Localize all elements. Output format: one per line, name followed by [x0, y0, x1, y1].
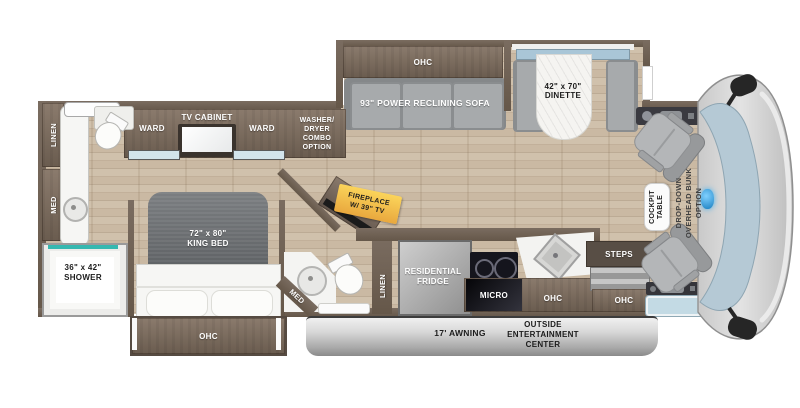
washer-dryer-line: WASHER/: [300, 116, 335, 125]
bedding-seam: [136, 286, 279, 288]
fridge-label: RESIDENTIAL: [405, 267, 462, 277]
front-cab: [690, 50, 800, 370]
tv-screen: [182, 127, 232, 152]
rv-floorplan: OHC 93" POWER RECLINING SOFA 42" x 70" D…: [0, 0, 800, 408]
overhead-bunk-option: DROP-DOWN OVERHEAD BUNK OPTION: [672, 163, 706, 243]
bunk-line: OPTION: [694, 188, 704, 219]
bed-slide-edge-right: [276, 318, 281, 350]
shower-size-label: 36" x 42": [65, 263, 102, 273]
bedroom-ohc: OHC: [130, 316, 287, 356]
fridge-label-block: RESIDENTIAL FRIDGE: [398, 266, 468, 288]
washer-dryer-line: DRYER: [304, 125, 330, 134]
steps-label: STEPS: [605, 250, 633, 259]
sofa: 93" POWER RECLINING SOFA: [344, 96, 506, 110]
mid-bath-sink-drain: [308, 276, 313, 281]
tv-cabinet: TV CABINET: [172, 111, 242, 123]
rear-sink-drain: [71, 205, 76, 210]
dinette-label: DINETTE: [545, 91, 581, 100]
dinette-size-label: 42" x 70": [545, 82, 582, 91]
pillow-right: [211, 290, 273, 317]
cockpit-table-label: COCKPIT: [649, 190, 657, 224]
shower-label-block: 36" x 42" SHOWER: [47, 261, 119, 285]
king-bed-label-block: 72" x 80" KING BED: [158, 227, 258, 251]
outside-entertainment: OUTSIDE ENTERTAINMENT CENTER: [478, 318, 608, 351]
cockpit-table: COCKPIT TABLE: [644, 183, 670, 231]
bed-slide-wall-left: [128, 200, 134, 317]
tv-cabinet-label: TV CABINET: [182, 113, 233, 122]
dinette-bench-right: [606, 60, 638, 132]
bed-slide-light-left: [128, 150, 180, 160]
bedroom-ohc-label: OHC: [199, 332, 218, 341]
dinette-slide-wall-right: [643, 40, 650, 68]
entry-steps: [590, 267, 650, 291]
king-bed-label: KING BED: [187, 239, 229, 249]
bed-slide-light-right: [233, 150, 285, 160]
sofa-ohc-label: OHC: [414, 58, 433, 67]
entry-ohc-label: OHC: [615, 296, 634, 305]
dinette: 42" x 70" DINETTE: [530, 78, 596, 104]
dash-knob: [650, 286, 656, 292]
fridge-label2: FRIDGE: [417, 277, 449, 287]
ward-right: WARD: [236, 121, 288, 135]
med-rear-label: MED: [46, 175, 60, 235]
kitchen-ohc-label: OHC: [544, 294, 563, 303]
dinette-side-window: [642, 66, 653, 100]
dinette-slide-wall-left: [504, 40, 511, 111]
bunk-line: DROP-DOWN: [674, 178, 684, 229]
shower-label: SHOWER: [64, 273, 102, 283]
ward-left-label: WARD: [139, 124, 165, 133]
linen-rear-label: LINEN: [46, 105, 60, 165]
cockpit-table-label2: TABLE: [657, 195, 665, 219]
rear-vanity-sink: [63, 197, 88, 222]
sofa-slide-wall-left: [336, 40, 343, 108]
bed-slide-edge-left: [132, 318, 137, 350]
burner: [494, 257, 517, 280]
washer-dryer-line: OPTION: [303, 143, 332, 152]
king-bed-size-label: 72" x 80": [190, 229, 227, 239]
burner: [475, 259, 494, 278]
micro-label: MICRO: [480, 291, 508, 300]
mid-bath-linen-label: LINEN: [376, 258, 388, 314]
rear-vanity-counter: [60, 105, 89, 246]
entertainment-line: CENTER: [526, 340, 561, 350]
entertainment-line: OUTSIDE: [524, 320, 562, 330]
kitchen-faucet: [553, 253, 558, 258]
washer-dryer-option: WASHER/ DRYER COMBO OPTION: [288, 112, 346, 155]
kitchen-ohc: OHC: [530, 291, 576, 305]
entertainment-line: ENTERTAINMENT: [507, 330, 579, 340]
mid-bath-mat: [318, 303, 370, 314]
microwave: MICRO: [466, 279, 522, 311]
sofa-label: 93" POWER RECLINING SOFA: [360, 98, 490, 108]
ward-right-label: WARD: [249, 124, 275, 133]
pillow-left: [146, 290, 208, 317]
sofa-ohc: OHC: [343, 46, 503, 78]
washer-dryer-line: COMBO: [303, 134, 331, 143]
bunk-line: OVERHEAD BUNK: [684, 168, 694, 238]
shower-accent-strip: [48, 245, 118, 249]
